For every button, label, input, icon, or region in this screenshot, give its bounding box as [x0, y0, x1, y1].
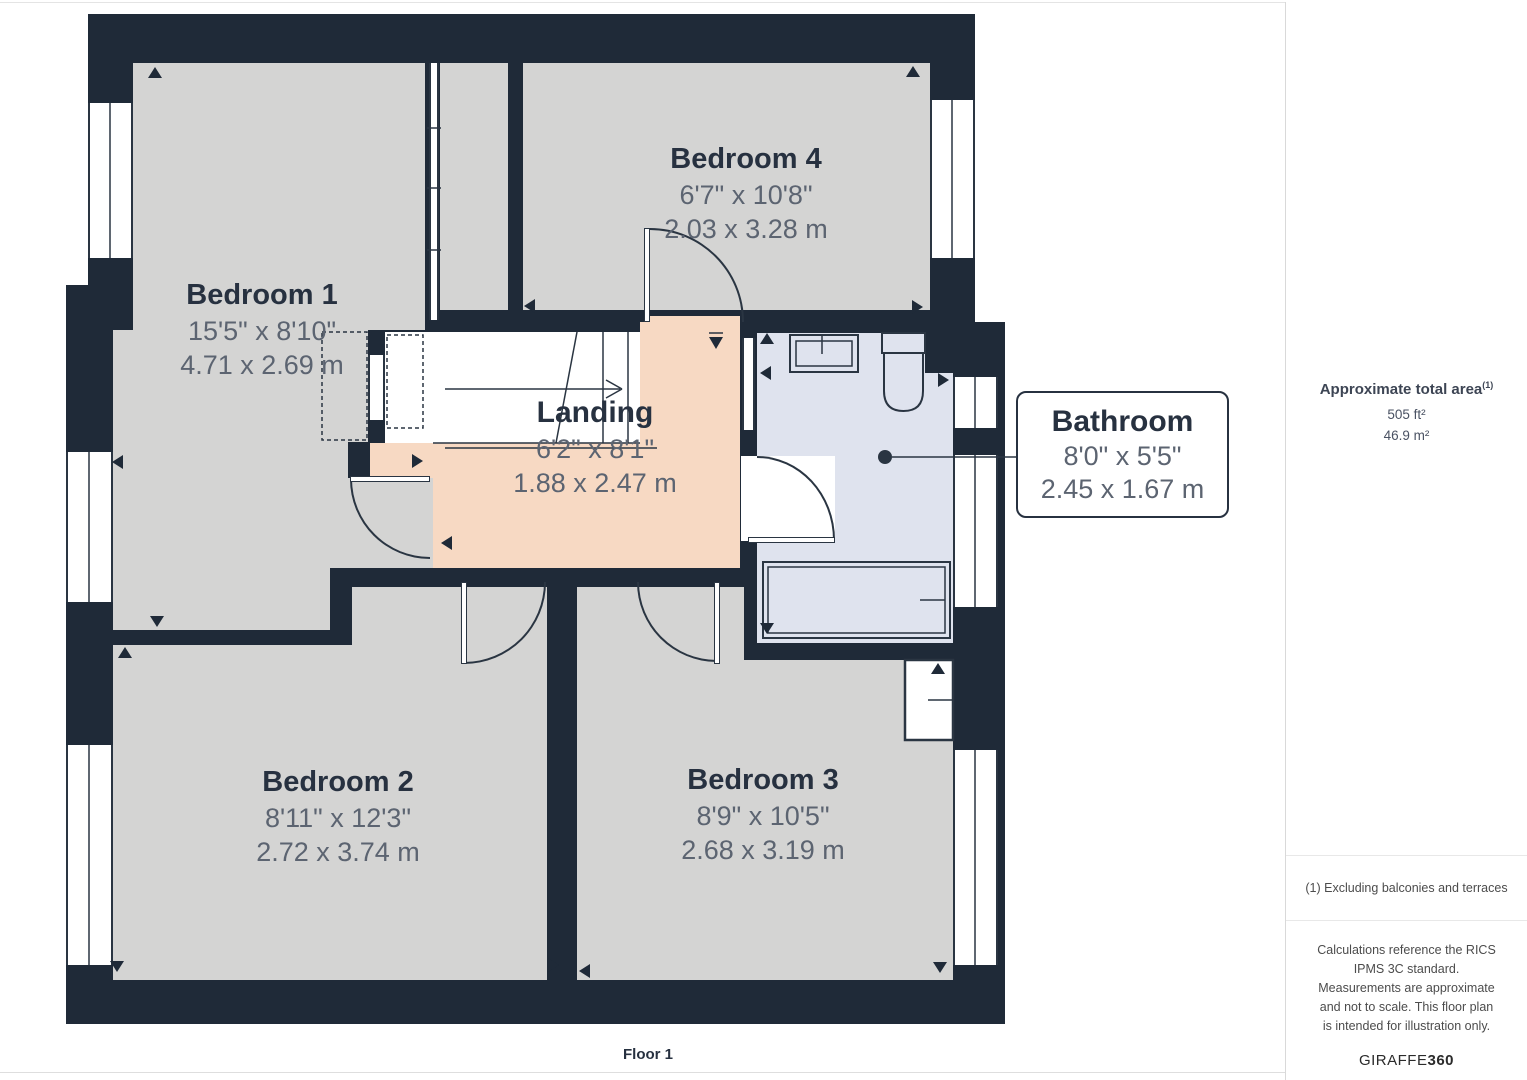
total-area-m: 46.9 m²: [1286, 425, 1527, 446]
window-bathroom-right-1: [953, 377, 998, 428]
landing-metric: 1.88 x 2.47 m: [513, 466, 677, 500]
door-leaf-bedroom2: [461, 582, 467, 664]
room-bedroom1-lower: [113, 442, 330, 630]
bathroom-imperial: 8'0" x 5'5": [1063, 440, 1181, 473]
door-leaf-bathroom: [748, 537, 835, 543]
brand-suffix: 360: [1427, 1052, 1454, 1069]
room-bathroom-north: [757, 333, 925, 373]
bathroom-callout: Bathroom 8'0" x 5'5" 2.45 x 1.67 m: [1016, 391, 1229, 518]
bedroom1-imperial: 15'5" x 8'10": [180, 314, 344, 348]
brand-prefix: GIRAFFE: [1359, 1052, 1428, 1069]
window-bathroom-right-2: [953, 455, 998, 607]
window-bedroom1-top: [88, 103, 133, 258]
total-area-ft: 505 ft²: [1286, 404, 1527, 425]
footnote-text: (1) Excluding balconies and terraces: [1295, 881, 1517, 895]
legal-box: Calculations reference the RICS IPMS 3C …: [1286, 921, 1527, 1069]
bedroom1-name: Bedroom 1: [180, 276, 344, 314]
label-bedroom1: Bedroom 1 15'5" x 8'10" 4.71 x 2.69 m: [180, 276, 344, 382]
room-stair-void: [440, 63, 508, 310]
bathroom-metric: 2.45 x 1.67 m: [1041, 473, 1205, 506]
landing-name: Landing: [513, 394, 677, 432]
door-leaf-bedroom4: [644, 228, 650, 322]
footnote-box: (1) Excluding balconies and terraces: [1286, 855, 1527, 921]
bedroom2-imperial: 8'11" x 12'3": [256, 801, 420, 835]
bedroom1-metric: 4.71 x 2.69 m: [180, 348, 344, 382]
total-area-title: Approximate total area(1): [1286, 380, 1527, 398]
bathroom-name: Bathroom: [1052, 404, 1194, 440]
window-bedroom1-stair: [368, 355, 385, 420]
wall-notch-top-left: [66, 14, 88, 285]
label-landing: Landing 6'2" x 8'1" 1.88 x 2.47 m: [513, 394, 677, 500]
wall-notch-top-right: [975, 14, 1005, 322]
landing-imperial: 6'2" x 8'1": [513, 432, 677, 466]
window-landing-bathroom: [742, 338, 755, 430]
label-bedroom2: Bedroom 2 8'11" x 12'3" 2.72 x 3.74 m: [256, 763, 420, 869]
disclaimer-text: Calculations reference the RICS IPMS 3C …: [1286, 921, 1527, 1036]
window-bedroom4-right: [930, 100, 975, 258]
bedroom4-metric: 2.03 x 3.28 m: [664, 212, 828, 246]
bedroom3-metric: 2.68 x 3.19 m: [681, 833, 845, 867]
label-bedroom4: Bedroom 4 6'7" x 10'8" 2.03 x 3.28 m: [664, 140, 828, 246]
bedroom4-name: Bedroom 4: [664, 140, 828, 178]
total-area-superscript: (1): [1482, 380, 1493, 390]
bedroom3-name: Bedroom 3: [681, 761, 845, 799]
room-landing-west: [370, 443, 433, 478]
door-leaf-bedroom3: [714, 582, 720, 664]
partition-bedroom1-glazed: [429, 63, 439, 320]
bedroom2-metric: 2.72 x 3.74 m: [256, 835, 420, 869]
floor-title: Floor 1: [623, 1046, 673, 1063]
window-bedroom1-left: [66, 452, 113, 602]
info-sidebar: Approximate total area(1) 505 ft² 46.9 m…: [1285, 2, 1527, 1080]
total-area-title-text: Approximate total area: [1320, 381, 1483, 398]
bedroom3-imperial: 8'9" x 10'5": [681, 799, 845, 833]
label-bedroom3: Bedroom 3 8'9" x 10'5" 2.68 x 3.19 m: [681, 761, 845, 867]
window-bedroom2-left: [66, 745, 113, 965]
floorplan-page: Bedroom 1 15'5" x 8'10" 4.71 x 2.69 m Be…: [0, 0, 1527, 1080]
bedroom4-imperial: 6'7" x 10'8": [664, 178, 828, 212]
bedroom2-name: Bedroom 2: [256, 763, 420, 801]
window-bedroom3-right: [953, 750, 998, 965]
door-leaf-bedroom1: [350, 476, 430, 482]
total-area-block: Approximate total area(1) 505 ft² 46.9 m…: [1286, 380, 1527, 446]
room-bedroom1-edge: [330, 442, 348, 568]
brand-logo: GIRAFFE360: [1286, 1052, 1527, 1069]
